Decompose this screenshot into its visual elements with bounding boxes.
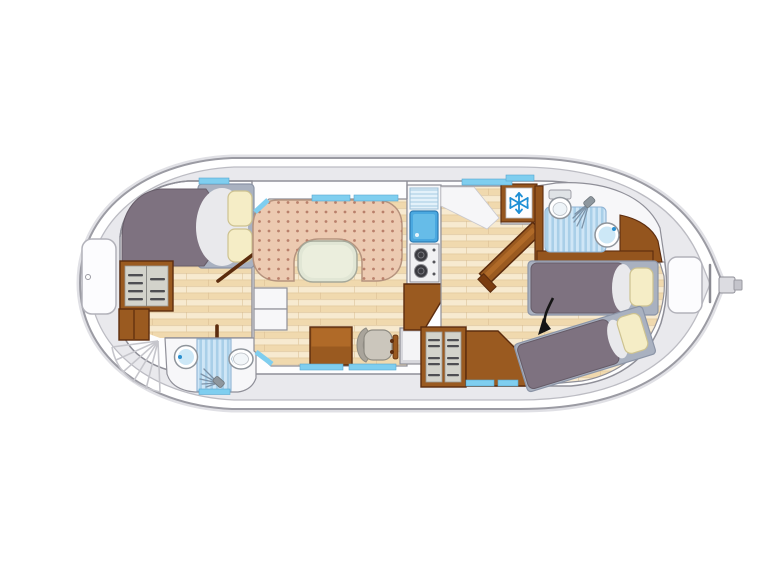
salon-window-top-1 [312, 195, 350, 201]
salon-steps-upper [254, 288, 287, 309]
shelf-line [447, 357, 459, 359]
shelf-line [447, 339, 459, 341]
stove-knob [433, 273, 436, 276]
galley-window [506, 175, 534, 181]
aft-sink [595, 223, 619, 247]
bow-wardrobe [120, 261, 173, 311]
aft-window-bottom-2 [498, 380, 518, 386]
galley-draining-board [410, 188, 438, 209]
shelf-line [428, 363, 440, 365]
stove-knob [433, 249, 436, 252]
bow-cabin [119, 181, 255, 341]
shelf-line [428, 345, 440, 347]
stove-burner [415, 265, 428, 278]
shelf-line [428, 357, 440, 359]
galley [404, 181, 442, 330]
rudder-mount [719, 277, 735, 293]
shelf-line [128, 274, 143, 276]
aft-sink-faucet [612, 227, 616, 231]
stove-knob [433, 261, 436, 264]
shelf-line [150, 298, 165, 300]
shelf-line [128, 282, 143, 284]
bow-hatch-handle-icon [86, 275, 91, 280]
stove-burner [415, 249, 428, 262]
galley-stove [410, 244, 439, 282]
mid-wardrobe [421, 327, 466, 387]
bow-sink [175, 346, 198, 369]
salon-table [298, 241, 357, 282]
shelf-line [447, 345, 459, 347]
aft-window-bottom-1 [466, 380, 494, 386]
salon-window-top-2 [354, 195, 398, 201]
bow-toilet [229, 349, 253, 369]
rudder-tiller [734, 280, 742, 290]
salon [253, 199, 423, 366]
helm-seat [357, 328, 392, 362]
galley-sink [410, 211, 438, 242]
boat-floor-plan [0, 0, 768, 576]
stern-locker [668, 257, 702, 313]
shelf-line [447, 363, 459, 365]
shelf-line [128, 290, 143, 292]
aft-bed-top-pillow [630, 268, 653, 306]
bow-bathroom [165, 338, 256, 395]
bow-bathroom-window [199, 389, 230, 395]
salon-steps-lower [254, 309, 287, 330]
bow-bed-pillow-top [228, 191, 252, 226]
shelf-line [447, 374, 459, 376]
aft-toilet [549, 190, 571, 219]
shelf-line [150, 290, 165, 292]
fridge [501, 184, 537, 222]
shelf-line [428, 339, 440, 341]
entry-door-window [462, 179, 512, 185]
bow-cabin-window [199, 178, 229, 184]
shelf-line [150, 278, 165, 280]
shelf-line [428, 374, 440, 376]
floor-plan-canvas [0, 0, 768, 576]
bow-sink-faucet [178, 355, 182, 359]
salon-window-bottom-2 [349, 364, 396, 370]
helm-chest [310, 327, 352, 365]
galley-faucet [415, 233, 419, 237]
salon-window-bottom-1 [300, 364, 343, 370]
bow-cabinet [119, 309, 149, 340]
shelf-line [128, 298, 143, 300]
helm-console [400, 328, 423, 364]
